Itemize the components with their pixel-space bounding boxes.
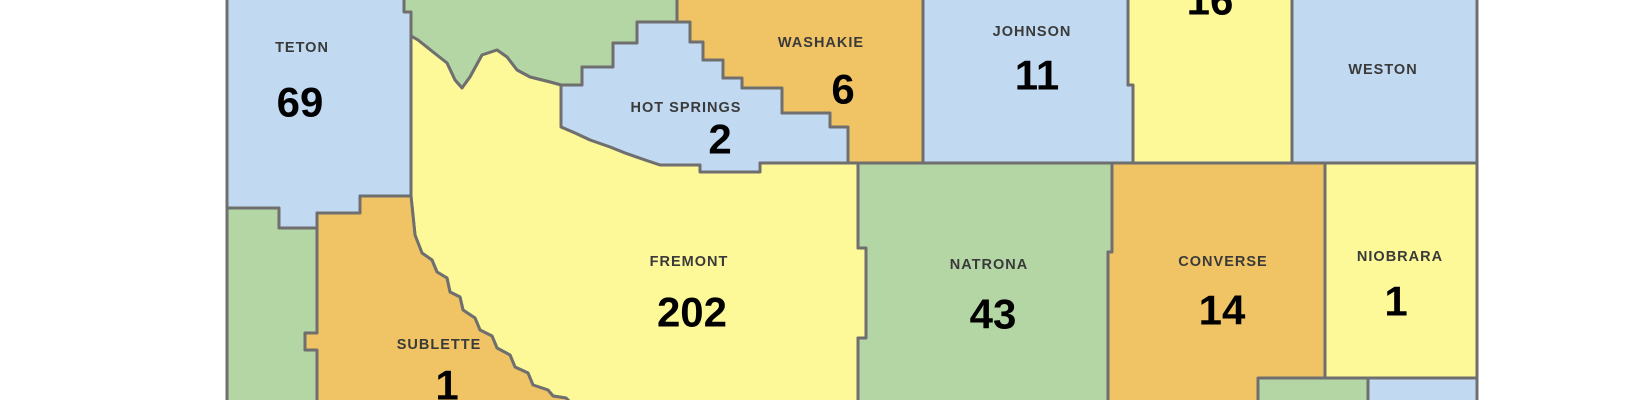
county-weston-shape bbox=[1292, 0, 1477, 163]
county-johnson-label: JOHNSON bbox=[993, 24, 1072, 40]
county-fremont-value: 202 bbox=[657, 289, 727, 336]
county-niobrara-value: 1 bbox=[1384, 278, 1407, 325]
county-campbell-area: 16 bbox=[1128, 0, 1292, 163]
county-natrona-label: NATRONA bbox=[950, 257, 1028, 273]
county-natrona-value: 43 bbox=[970, 291, 1017, 338]
county-washakie-label: WASHAKIE bbox=[778, 35, 864, 51]
county-campbell-area-shape bbox=[1128, 0, 1292, 163]
county-converse-shape bbox=[1108, 163, 1325, 400]
region-south-green bbox=[1258, 378, 1368, 400]
county-weston: WESTON bbox=[1292, 0, 1477, 163]
county-teton-label: TETON bbox=[275, 40, 329, 56]
county-johnson: JOHNSON 11 bbox=[923, 0, 1133, 163]
county-sublette-label: SUBLETTE bbox=[397, 337, 482, 353]
county-washakie-value: 6 bbox=[831, 66, 854, 113]
region-south-blue bbox=[1368, 378, 1477, 400]
county-natrona: NATRONA 43 bbox=[858, 163, 1112, 400]
county-fremont-label: FREMONT bbox=[650, 254, 729, 270]
county-niobrara-label: NIOBRARA bbox=[1357, 249, 1443, 265]
county-niobrara-shape bbox=[1325, 163, 1477, 378]
county-natrona-shape bbox=[858, 163, 1112, 400]
region-west-strip-green bbox=[227, 208, 317, 400]
map-canvas: TETON 69 HOT SPRINGS 2 WASHAKIE 6 JOHNSO… bbox=[0, 0, 1650, 400]
county-johnson-value: 11 bbox=[1015, 52, 1059, 99]
county-weston-label: WESTON bbox=[1348, 62, 1417, 78]
county-converse-label: CONVERSE bbox=[1178, 254, 1267, 270]
county-hot-springs-label: HOT SPRINGS bbox=[631, 100, 742, 116]
county-sublette-value: 1 bbox=[435, 362, 458, 400]
county-niobrara: NIOBRARA 1 bbox=[1325, 163, 1477, 378]
county-teton-value: 69 bbox=[277, 79, 324, 126]
county-converse: CONVERSE 14 bbox=[1108, 163, 1325, 400]
county-campbell-area-value: 16 bbox=[1187, 0, 1234, 24]
county-teton: TETON 69 bbox=[227, 0, 411, 228]
wyoming-county-map: TETON 69 HOT SPRINGS 2 WASHAKIE 6 JOHNSO… bbox=[0, 0, 1650, 400]
county-converse-value: 14 bbox=[1199, 287, 1246, 334]
county-hot-springs-value: 2 bbox=[708, 116, 731, 163]
